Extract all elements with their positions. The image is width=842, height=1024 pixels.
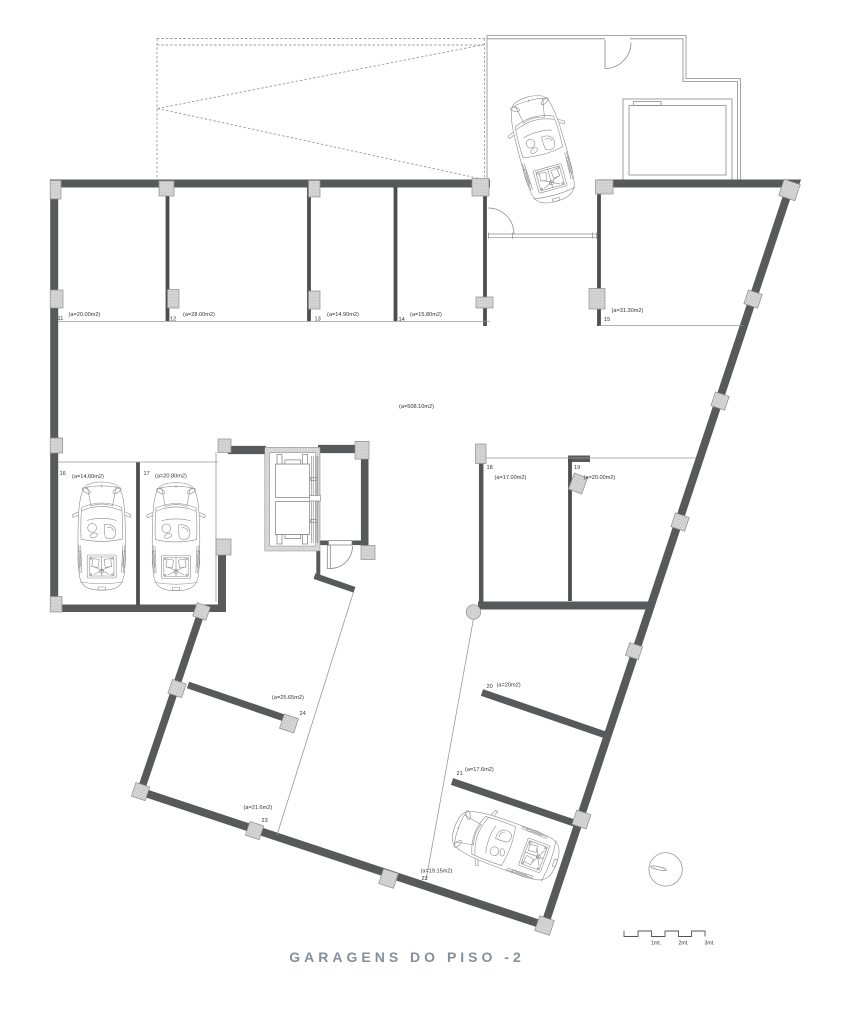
svg-text:(a=31.30m2): (a=31.30m2) <box>612 308 644 314</box>
svg-text:17: 17 <box>144 471 150 477</box>
svg-text:(a=28.00m2): (a=28.00m2) <box>183 312 215 318</box>
svg-text:GARAGENS DO PISO -2: GARAGENS DO PISO -2 <box>289 949 524 965</box>
svg-text:16: 16 <box>60 471 66 477</box>
svg-text:1mt.: 1mt. <box>651 941 661 947</box>
svg-text:(a=15.80m2): (a=15.80m2) <box>410 312 442 318</box>
svg-text:(a=19.15m2): (a=19.15m2) <box>421 869 453 875</box>
svg-text:18: 18 <box>487 465 493 471</box>
svg-text:(a=17.00m2): (a=17.00m2) <box>495 475 527 481</box>
svg-text:(a=14.90m2): (a=14.90m2) <box>327 312 359 318</box>
svg-text:3mt.: 3mt. <box>705 941 715 947</box>
svg-text:20: 20 <box>487 684 493 690</box>
svg-text:(a=20.00m2): (a=20.00m2) <box>584 475 616 481</box>
svg-text:(a=508.10m2): (a=508.10m2) <box>399 404 434 410</box>
svg-text:15: 15 <box>604 317 610 323</box>
svg-text:(a=20m2): (a=20m2) <box>497 683 521 689</box>
svg-text:(a=21.6m2): (a=21.6m2) <box>244 805 273 811</box>
svg-text:24: 24 <box>300 711 306 717</box>
svg-text:(a=14.60m2): (a=14.60m2) <box>72 474 104 480</box>
svg-text:(a=25.65m2): (a=25.65m2) <box>272 695 304 701</box>
svg-text:(a=20.80m2): (a=20.80m2) <box>155 474 187 480</box>
svg-text:22: 22 <box>422 876 428 882</box>
svg-text:2mt.: 2mt. <box>679 941 689 947</box>
svg-text:14: 14 <box>399 317 405 323</box>
svg-text:11: 11 <box>58 316 64 322</box>
svg-text:12: 12 <box>170 317 176 323</box>
svg-text:19: 19 <box>574 465 580 471</box>
svg-text:21: 21 <box>457 771 463 777</box>
svg-text:(a=17.6m2): (a=17.6m2) <box>465 767 494 773</box>
svg-text:(a=20.00m2): (a=20.00m2) <box>69 312 101 318</box>
svg-text:23: 23 <box>262 818 268 824</box>
svg-text:13: 13 <box>315 317 321 323</box>
